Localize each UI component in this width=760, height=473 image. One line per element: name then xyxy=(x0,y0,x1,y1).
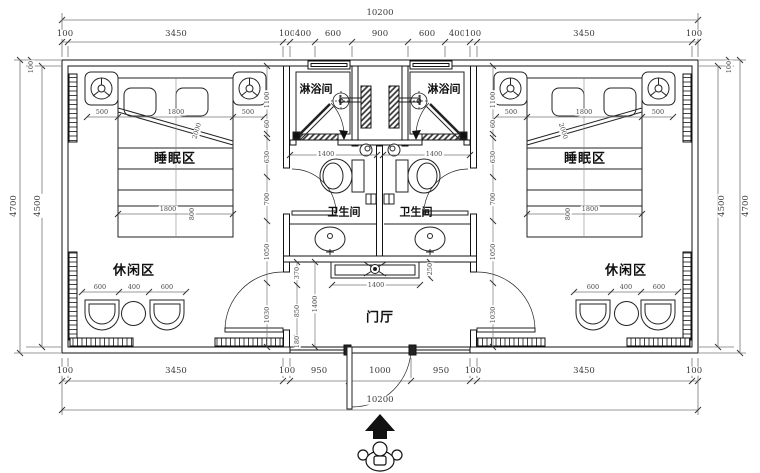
dim-bot-r0: 100 xyxy=(464,367,482,376)
dim-bedR-1: 1800 xyxy=(575,109,594,116)
dim-leisR-1: 400 xyxy=(619,284,633,291)
round-table-left xyxy=(122,302,146,326)
dim-innL-3: 700 xyxy=(264,192,271,206)
dim-left-outer: 4700 xyxy=(10,194,19,218)
dim-leisL-2: 600 xyxy=(160,284,174,291)
dim-top-4: 600 xyxy=(324,30,342,39)
dim-top-8: 100 xyxy=(464,30,482,39)
room-label-leisure-right: 休闲区 xyxy=(605,265,647,278)
dim-bot-c2: 950 xyxy=(432,367,450,376)
entry-person-figure xyxy=(358,414,402,471)
dim-top-10: 100 xyxy=(685,30,703,39)
swirl-drain-left xyxy=(360,144,372,156)
room-label-wc-left: 卫生间 xyxy=(328,207,361,218)
dim-bot-r1: 3450 xyxy=(572,367,596,376)
dim-innR-3: 700 xyxy=(490,192,497,206)
dim-innR-0: 1100 xyxy=(490,91,497,110)
dim-bot-l1: 3450 xyxy=(164,367,188,376)
dim-bedL-2: 500 xyxy=(241,109,255,116)
dim-overall-top: 10200 xyxy=(365,9,394,18)
dim-bedR-2: 500 xyxy=(651,109,665,116)
dim-bedL-foot: 1800 xyxy=(159,206,178,213)
dim-left-inner: 4500 xyxy=(34,194,43,218)
room-label-wc-right: 卫生间 xyxy=(400,207,433,218)
dim-right-inner: 4500 xyxy=(718,194,727,218)
dim-bot-c1: 1000 xyxy=(368,367,392,376)
dim-bath-right: 1400 xyxy=(425,151,444,158)
dim-bath-left: 1400 xyxy=(317,151,336,158)
dim-right-wall: 100 xyxy=(726,60,733,74)
room-label-leisure-left: 休闲区 xyxy=(113,265,155,278)
round-table-right xyxy=(615,302,639,326)
dim-innL-5: 1030 xyxy=(264,306,271,325)
dim-bedR-0: 500 xyxy=(504,109,518,116)
dim-hall-1: 850 xyxy=(294,304,301,318)
console-table xyxy=(331,262,419,278)
dim-innR-4: 1050 xyxy=(490,243,497,262)
toilet-right xyxy=(396,159,440,193)
dim-leisR-2: 600 xyxy=(652,284,666,291)
dim-innL-4: 1050 xyxy=(264,243,271,262)
dim-bedL-1: 1800 xyxy=(167,109,186,116)
dim-bedR-foot: 1800 xyxy=(581,206,600,213)
swirl-drain-right xyxy=(388,144,400,156)
dim-innR-1: 60 xyxy=(490,119,497,129)
dim-innL-2: 630 xyxy=(264,150,271,164)
dim-innL-0: 1100 xyxy=(264,91,271,110)
dim-console-width: 1400 xyxy=(367,282,386,289)
dim-hall-2: 180 xyxy=(294,335,301,349)
room-label-shower-right: 淋浴间 xyxy=(428,84,461,95)
dim-top-0: 100 xyxy=(56,30,74,39)
dim-leisL-1: 400 xyxy=(127,284,141,291)
room-label-shower-left: 淋浴间 xyxy=(300,84,333,95)
dim-bot-l2: 100 xyxy=(278,367,296,376)
dim-overall-bottom: 10200 xyxy=(365,396,394,405)
dim-top-9: 3450 xyxy=(572,30,596,39)
dim-innR-5: 1030 xyxy=(490,306,497,325)
floor-plan-canvas: 10200 100 3450 100 400 600 900 600 400 1… xyxy=(0,0,760,473)
dim-bot-r2: 100 xyxy=(685,367,703,376)
dim-innL-1: 60 xyxy=(264,119,271,129)
room-label-sleep-right: 睡眠区 xyxy=(564,153,606,166)
dim-bot-c0: 950 xyxy=(310,367,328,376)
dim-top-6: 600 xyxy=(418,30,436,39)
dim-leisL-0: 600 xyxy=(93,284,107,291)
toilet-left xyxy=(320,159,364,193)
dim-bot-l0: 100 xyxy=(56,367,74,376)
dim-top-3: 400 xyxy=(294,30,312,39)
dim-leisR-0: 600 xyxy=(586,284,600,291)
room-label-hall: 门厅 xyxy=(366,312,394,325)
dim-bedL-0: 500 xyxy=(95,109,109,116)
dim-bedL-footdepth: 800 xyxy=(189,207,196,221)
dim-innR-2: 630 xyxy=(490,150,497,164)
dim-console-depth: 250 xyxy=(427,262,434,276)
dim-top-1: 3450 xyxy=(164,30,188,39)
dim-left-wall: 100 xyxy=(28,60,35,74)
entry-arrow xyxy=(365,414,395,439)
dim-bedR-footdepth: 800 xyxy=(565,207,572,221)
dim-top-5: 900 xyxy=(371,30,389,39)
dim-hall-depth: 1400 xyxy=(312,295,319,314)
room-label-sleep-left: 睡眠区 xyxy=(154,153,196,166)
dim-right-outer: 4700 xyxy=(742,194,751,218)
dim-hall-0: 370 xyxy=(294,266,301,280)
